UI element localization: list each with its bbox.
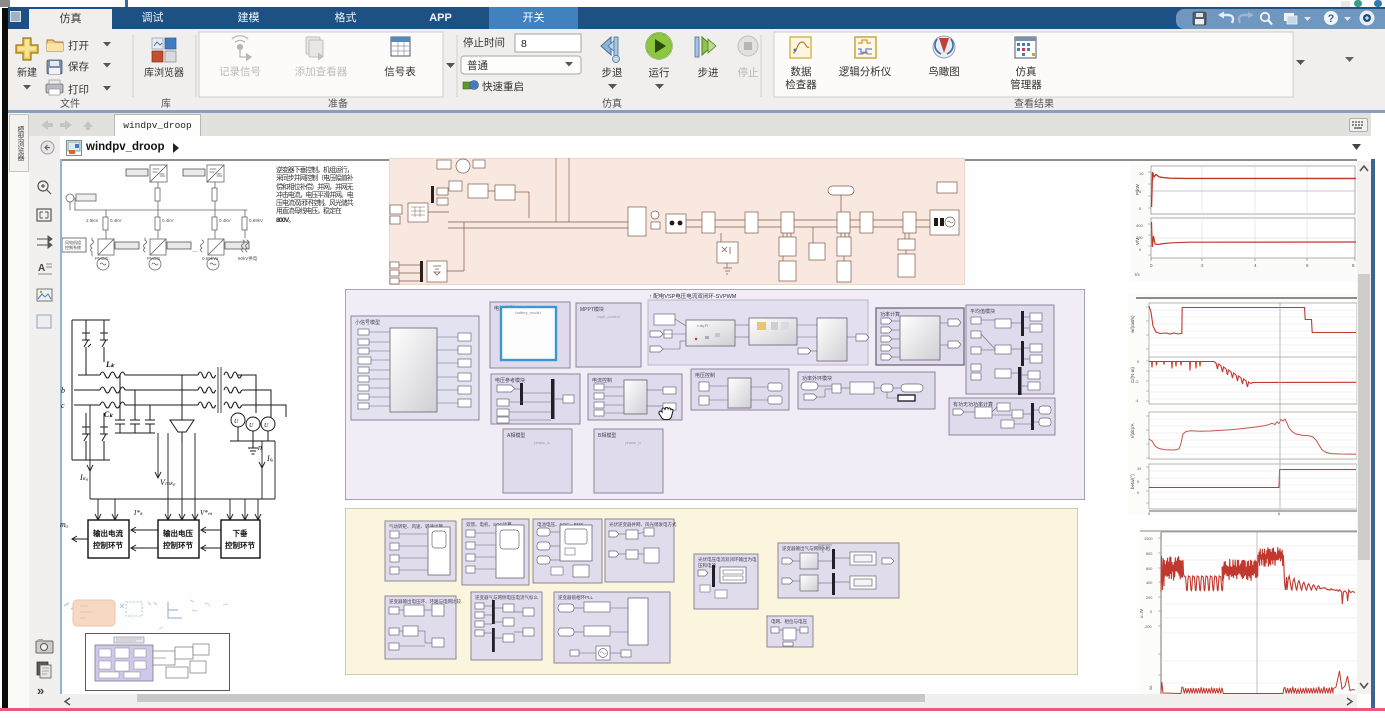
svg-text:beta/(°): beta/(°) (1130, 474, 1135, 489)
svg-text:控制环节: 控制环节 (163, 540, 193, 550)
svg-text:0.69kV: 0.69kV (249, 218, 263, 223)
svg-text:添加查看器: 添加查看器 (295, 65, 348, 78)
svg-text:光伏逆变器并网、风光储发电方式: 光伏逆变器并网、风光储发电方式 (609, 521, 677, 528)
svg-text:停止: 停止 (738, 66, 759, 79)
svg-text:U: U (264, 423, 269, 429)
svg-text:200: 200 (1146, 596, 1152, 600)
svg-text:2.5km: 2.5km (86, 218, 99, 223)
svg-text:管理器: 管理器 (1010, 78, 1042, 91)
svg-text:400: 400 (1146, 581, 1152, 585)
svg-text:电压控制: 电压控制 (695, 372, 715, 379)
svg-text:运行: 运行 (649, 66, 670, 79)
svg-text:检查器: 检查器 (785, 78, 817, 91)
svg-text:功率外环模块: 功率外环模块 (802, 375, 832, 382)
svg-text:准备: 准备 (328, 97, 348, 110)
svg-text:0.4kV: 0.4kV (219, 218, 231, 223)
svg-text:电网、相位与电压: 电网、相位与电压 (771, 618, 807, 625)
svg-text:10: 10 (1137, 467, 1141, 471)
svg-text:b: b (61, 386, 65, 395)
svg-text:文件: 文件 (60, 97, 80, 110)
svg-text:PMSG: PMSG (95, 256, 109, 261)
svg-text:phase_b: phase_b (625, 440, 641, 445)
svg-text:控制环节: 控制环节 (225, 540, 255, 550)
svg-text:8: 8 (521, 38, 527, 50)
svg-text:打印: 打印 (68, 83, 89, 96)
svg-text:Lₖ: Lₖ (105, 360, 116, 369)
svg-text:0: 0 (1150, 610, 1152, 614)
svg-text:逻辑分析仪: 逻辑分析仪 (839, 65, 892, 78)
svg-text:V*ₘ: V*ₘ (200, 509, 213, 517)
svg-text:打开: 打开 (68, 39, 89, 52)
svg-text:u₋/V: u₋/V (1140, 609, 1144, 618)
svg-text:逆变器气与网侧电压电流气标么: 逆变器气与网侧电压电流气标么 (475, 594, 538, 601)
svg-text:步进: 步进 (698, 67, 719, 79)
svg-text:Iₗₐ: Iₗₐ (266, 454, 274, 463)
svg-text:B相模型: B相模型 (598, 432, 616, 439)
svg-text:输出电压: 输出电压 (163, 528, 193, 538)
svg-text:库浏览器: 库浏览器 (144, 66, 184, 79)
svg-text:PMSG: PMSG (147, 256, 161, 261)
svg-text:60kV供电: 60kV供电 (238, 255, 258, 262)
svg-text:v dq PI: v dq PI (697, 324, 708, 328)
svg-text:800: 800 (1146, 552, 1152, 556)
svg-text:逆变器输出电压环、环路与电网比较: 逆变器输出电压环、环路与电网比较 (389, 598, 461, 605)
svg-text:t/s: t/s (1135, 272, 1141, 277)
svg-text:电流控制: 电流控制 (592, 377, 612, 384)
svg-text:phase_a: phase_a (534, 440, 550, 445)
svg-text:V/V: V/V (1135, 238, 1140, 245)
svg-text:?: ? (1328, 13, 1335, 25)
svg-text:鸟瞰图: 鸟瞰图 (928, 65, 960, 78)
svg-text:新建: 新建 (17, 66, 37, 79)
svg-text:平均值模块: 平均值模块 (970, 308, 995, 315)
svg-text:U: U (234, 419, 239, 425)
svg-text:Iₖₐ: Iₖₐ (79, 473, 89, 482)
svg-text:1000: 1000 (1144, 537, 1152, 541)
svg-text:600: 600 (1146, 567, 1152, 571)
svg-text:仿真: 仿真 (602, 97, 622, 110)
svg-text:mppt_control: mppt_control (596, 314, 619, 319)
svg-text:0: 0 (1137, 360, 1139, 364)
svg-text:-2: -2 (1135, 380, 1138, 384)
svg-text:停止时间: 停止时间 (463, 36, 505, 49)
svg-text:-4: -4 (1135, 399, 1138, 403)
svg-text:0: 0 (1137, 491, 1139, 495)
svg-text:0.4kV: 0.4kV (162, 218, 174, 223)
svg-text:功率计算: 功率计算 (880, 311, 900, 318)
svg-text:逆变器锁相环PLL: 逆变器锁相环PLL (558, 594, 594, 601)
svg-text:...: ... (192, 247, 198, 254)
svg-text:P/kW: P/kW (1135, 183, 1140, 195)
svg-text:普通: 普通 (467, 59, 488, 72)
svg-text:10: 10 (1139, 171, 1144, 176)
svg-text:输出电流: 输出电流 (93, 528, 123, 538)
svg-text:控制环节: 控制环节 (93, 540, 123, 550)
svg-text:A相模型: A相模型 (507, 432, 525, 439)
svg-text:A: A (38, 263, 45, 274)
svg-text:Vₘₖₐ: Vₘₖₐ (160, 478, 176, 487)
svg-text:步退: 步退 (602, 67, 623, 79)
svg-text:Cₖ: Cₖ (104, 410, 114, 419)
svg-text:数据: 数据 (791, 65, 812, 78)
svg-text:信号表: 信号表 (384, 65, 416, 78)
svg-text:电压参考模块: 电压参考模块 (495, 377, 525, 384)
svg-text:I/(dc)/A: I/(dc)/A (1130, 423, 1135, 438)
svg-text:下垂: 下垂 (233, 528, 248, 538)
svg-text:U: U (249, 423, 254, 429)
svg-text:仿真: 仿真 (1016, 65, 1037, 78)
svg-text:0.69kVa: 0.69kVa (202, 256, 219, 261)
svg-text:»: » (37, 683, 44, 698)
svg-text:n: n (258, 443, 262, 452)
svg-text:battery_model: battery_model (515, 310, 540, 315)
svg-text:c: c (61, 401, 65, 410)
svg-text:控制系统: 控制系统 (65, 244, 81, 250)
svg-text:光伏电压电流双闭环输出为电: 光伏电压电流双闭环输出为电 (698, 556, 757, 563)
svg-text:保存: 保存 (68, 60, 89, 73)
svg-text:5: 5 (1137, 480, 1139, 484)
svg-text:-200: -200 (1144, 625, 1152, 629)
svg-text:w/(rad/s): w/(rad/s) (1130, 315, 1135, 333)
svg-text:I*ₖ: I*ₖ (133, 509, 144, 517)
svg-text:↑ 配电VSP电压电流双闭环-SVPWM: ↑ 配电VSP电压电流双闭环-SVPWM (649, 292, 737, 300)
svg-text:查看结果: 查看结果 (1014, 97, 1054, 110)
svg-text:库: 库 (161, 97, 171, 110)
svg-text:快速重启: 快速重启 (482, 80, 524, 93)
svg-text:0.4kV: 0.4kV (110, 218, 122, 223)
svg-text:i/A: i/A (1148, 685, 1153, 690)
svg-text:MPPT模块: MPPT模块 (580, 306, 604, 313)
svg-text:记录信号: 记录信号 (219, 66, 261, 78)
svg-text:mₐ: mₐ (60, 520, 69, 529)
svg-text:400: 400 (1136, 223, 1143, 228)
